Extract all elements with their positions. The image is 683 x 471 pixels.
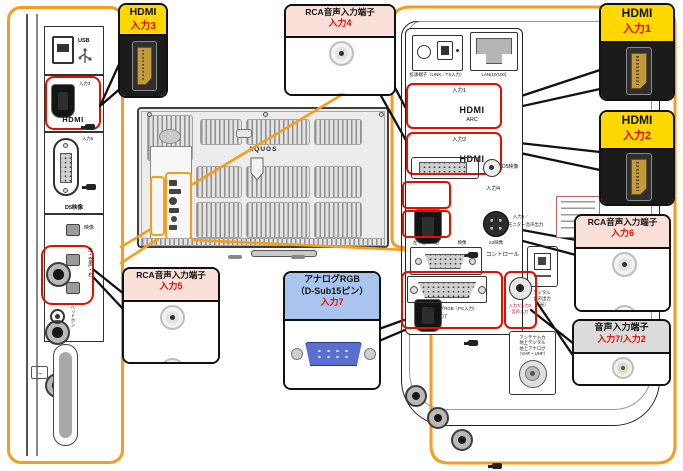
tv-vent <box>314 166 362 198</box>
callout-audio-input72: 音声入力端子 入力7/入力2 <box>572 319 671 386</box>
callout-hdmi-input2: HDMI 入力2 <box>599 110 675 206</box>
rear-hdmi1-arc-label: ARC <box>458 117 486 124</box>
expansion-port-round <box>417 45 431 59</box>
vga-screw-icon <box>291 348 303 360</box>
callout-hdmi2-input: 入力2 <box>601 129 673 143</box>
minijack-green-icon <box>612 357 634 379</box>
rca-white-jack-icon <box>329 41 354 66</box>
callout-rca5-input: 入力5 <box>124 281 218 293</box>
f-connector-pin <box>530 371 535 376</box>
callout-hdmi-input1: HDMI 入力1 <box>599 3 675 101</box>
rear-d5-video-label: D5映像 <box>502 164 526 170</box>
callout-rca6-title: RCA音声入力端子 <box>576 217 669 228</box>
rca-red-jack-icon <box>612 305 637 312</box>
side-hdmi-logo: HDMI <box>48 115 98 124</box>
tv-stand-foot <box>291 255 305 259</box>
rear-audio-in-label-2: 音声入力 <box>503 309 537 315</box>
rear-hdmi2-input-label: 入力2 <box>452 137 478 144</box>
side-video-label: 映像 <box>84 225 102 231</box>
device-icon <box>86 184 96 190</box>
hdmi1-connector-art <box>601 43 673 99</box>
expansion-port-inner <box>441 46 449 55</box>
tv-vent <box>246 119 310 145</box>
callout-hdmi1-title: HDMI <box>601 6 673 22</box>
rear-rgb-label: アナログRGB（PC入力） <box>403 306 501 311</box>
hdmi-connector-icon <box>626 153 652 201</box>
tv-vent <box>314 119 362 145</box>
rear-round-jack <box>483 159 501 177</box>
highlight-rear-area <box>165 172 192 240</box>
tv-stand-base <box>251 250 317 257</box>
rear-audio-in-jack <box>509 277 532 300</box>
control-dsub9 <box>425 254 465 269</box>
side-d-input-label: 入力5 <box>82 136 102 141</box>
hdmi2-connector-art <box>601 150 673 204</box>
tv-vent <box>314 202 362 238</box>
callout-rca6-input: 入力6 <box>576 228 669 240</box>
usb-port-tongue <box>57 44 69 52</box>
device-icon <box>85 124 95 130</box>
tv-side-edge-line2 <box>36 14 38 456</box>
screw <box>63 143 68 148</box>
tv-bottom-vent-band <box>141 238 385 246</box>
callout-rgb-input: 入力7 <box>285 297 379 309</box>
hdmi3-connector-art <box>120 36 166 96</box>
rca-red-jack-icon <box>160 358 185 364</box>
side-hdmi-input-label: 入力3 <box>79 81 101 86</box>
screw <box>63 188 68 193</box>
side-d5-video-label: D5映像 <box>46 205 102 212</box>
callout-rgb-title1: アナログRGB <box>285 274 379 286</box>
d-terminal-pins <box>419 162 467 174</box>
callout-analog-rgb: アナログRGB （D-Sub15ピン） 入力7 <box>283 271 381 390</box>
callout-rgb-title2: （D-Sub15ピン） <box>285 286 379 298</box>
rgb-connector-art <box>285 321 379 388</box>
headphone-jack-hole <box>55 314 60 319</box>
rear-input6-label: 入力6／ <box>513 214 543 219</box>
tv-connection-diagram: USB 入力3 HDMI 入力5 D5映像 映像 左・音声・右 ヘッドホン → … <box>0 0 683 471</box>
card-slot <box>53 344 78 446</box>
antenna-port-box: アンテナ入力 地上デジタル 地上アナログ （VHF・UHF） <box>509 331 556 395</box>
tv-side-edge-line <box>26 14 28 456</box>
screw <box>410 286 418 294</box>
side-d-terminal-port <box>53 138 79 196</box>
callout-rca4-title: RCA音声入力端子 <box>286 7 394 18</box>
rear-hdmi1-logo: HDMI <box>448 105 496 115</box>
insert-arrow-icon: → <box>31 366 48 379</box>
lan-port-label: LAN(10/100) <box>468 72 520 77</box>
expansion-port-square <box>437 41 453 60</box>
callout-rca-input4: RCA音声入力端子 入力4 <box>284 4 396 96</box>
control-port-label: コントロール <box>486 252 522 259</box>
divider <box>44 131 104 133</box>
tv-brand-logo: AQUOS <box>240 146 286 153</box>
screw <box>469 258 476 265</box>
rear-video-label: 映像 <box>449 240 475 245</box>
rear-rgb-input-label: 入力7 <box>433 314 455 321</box>
callout-rca5-title: RCA音声入力端子 <box>124 270 218 281</box>
screw <box>263 112 268 117</box>
side-hdmi-port <box>51 84 75 118</box>
tv-stand-foot <box>228 255 242 259</box>
rear-input6-audio-highlight <box>402 210 451 238</box>
callout-rca-input6: RCA音声入力端子 入力6 <box>574 214 671 312</box>
rear-hdmi1-input-label: 入力1 <box>452 88 478 95</box>
expansion-port-dot <box>456 49 459 52</box>
rear-s2-video-label: S2映像 <box>480 240 512 245</box>
hdmi-connector-icon <box>132 41 157 91</box>
callout-audio72-title: 音声入力端子 <box>574 322 669 334</box>
jack-hole <box>516 284 524 292</box>
tv-handle <box>236 129 252 138</box>
usb-icon <box>78 48 92 66</box>
callout-hdmi3-input: 入力3 <box>120 20 166 33</box>
side-headphone-label: ヘッドホン <box>67 305 76 345</box>
optical-port-square <box>534 253 551 270</box>
device-icon <box>492 463 502 469</box>
device-icon <box>468 340 478 346</box>
callout-hdmi1-input: 入力1 <box>601 22 673 36</box>
screw <box>415 258 422 265</box>
lan-port <box>470 32 518 71</box>
divider <box>44 213 104 215</box>
rear-jack <box>451 429 473 451</box>
side-d-terminal-pins <box>60 153 72 183</box>
hdmi-connector-icon <box>626 47 652 95</box>
tv-vent <box>196 202 242 238</box>
rca5-jacks-art <box>124 302 218 362</box>
optical-port-inner <box>538 257 546 265</box>
rear-audio-lr-label: 左・音声・右 <box>402 240 450 245</box>
usb-label: USB <box>78 38 100 45</box>
rear-input4-audio-highlight <box>402 181 451 209</box>
vga-connector-icon <box>305 342 362 366</box>
screw <box>478 286 486 294</box>
callout-rca-input5: RCA音声入力端子 入力5 <box>122 267 220 364</box>
rgb-dsub15 <box>418 282 476 298</box>
rear-d-terminal-port <box>411 157 479 179</box>
rear-jack <box>405 385 427 407</box>
usb-port <box>52 36 74 64</box>
screw <box>379 112 384 117</box>
screw <box>147 112 152 117</box>
lan-rj45-icon <box>476 38 512 64</box>
jack-nub <box>66 254 80 266</box>
jack-nub <box>66 282 80 294</box>
rear-s-video-port <box>483 211 509 237</box>
callout-rca4-input: 入力4 <box>286 18 394 30</box>
side-audio-lr-label: 左・音声・右 <box>82 247 93 305</box>
card-slot-opening <box>59 352 72 438</box>
audio72-jack-art <box>574 354 669 384</box>
callout-audio72-input: 入力7/入力2 <box>574 334 669 346</box>
jack-nub <box>66 224 80 236</box>
antenna-label-4: （VHF・UHF） <box>510 351 555 356</box>
callout-hdmi2-title: HDMI <box>601 113 673 129</box>
antenna-f-connector <box>519 360 547 388</box>
side-headphone-jack <box>50 309 65 324</box>
tv-vent <box>246 202 310 238</box>
rca6-jacks-art <box>576 249 669 310</box>
vga-pins <box>313 347 354 361</box>
vga-screw-icon <box>364 348 376 360</box>
tv-vent <box>246 166 310 198</box>
jack-hole <box>489 165 494 170</box>
rca-red-jack-icon <box>329 93 354 96</box>
callout-hdmi-input3: HDMI 入力3 <box>118 3 168 98</box>
rca-white-jack-icon <box>160 305 185 330</box>
rear-rgb-port <box>407 276 487 303</box>
expansion-port-label: 拡張端子（LINK／TS入力） <box>404 72 470 77</box>
expansion-port <box>412 35 463 71</box>
tv-vent-oval <box>159 129 181 144</box>
tv-vent <box>196 166 242 198</box>
rear-jack <box>427 407 449 429</box>
highlight-side-area <box>150 176 165 236</box>
rca-white-jack-icon <box>612 252 637 277</box>
callout-hdmi3-title: HDMI <box>120 6 166 20</box>
rca4-jacks-art <box>286 38 394 94</box>
rear-input4-label: 入力4 <box>486 186 510 193</box>
